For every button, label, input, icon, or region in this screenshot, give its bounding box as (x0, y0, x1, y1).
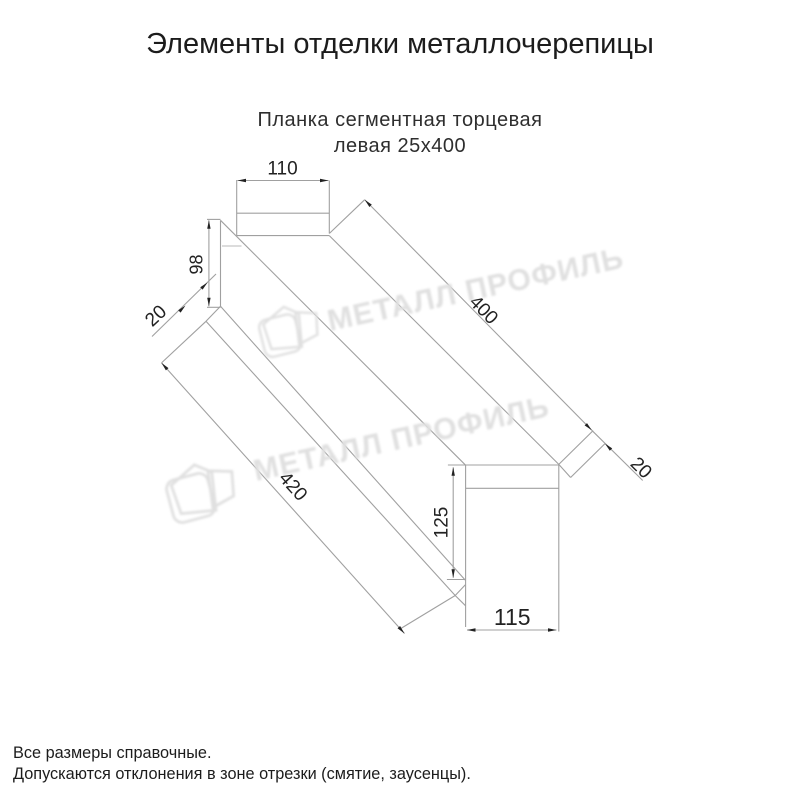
svg-text:20: 20 (141, 301, 171, 331)
svg-text:110: 110 (267, 159, 297, 180)
svg-text:МЕТАЛЛ ПРОФИЛЬ: МЕТАЛЛ ПРОФИЛЬ (325, 242, 627, 338)
svg-text:МЕТАЛЛ ПРОФИЛЬ: МЕТАЛЛ ПРОФИЛЬ (250, 390, 552, 488)
svg-text:115: 115 (494, 604, 531, 630)
svg-text:98: 98 (187, 254, 207, 274)
svg-text:20: 20 (626, 453, 656, 483)
svg-text:125: 125 (431, 507, 452, 539)
